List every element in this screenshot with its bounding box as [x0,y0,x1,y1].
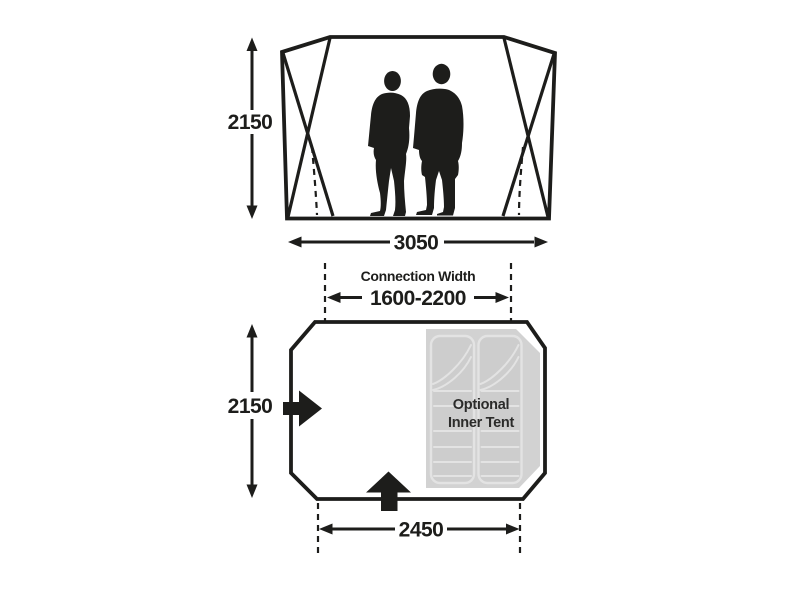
inner-tent-label-line2: Inner Tent [448,415,514,431]
connection-width-range-label: 1600-2200 [370,287,466,310]
arrowhead-left-icon [319,524,333,535]
plan-width-label: 2450 [399,519,444,542]
tent-spec-diagram: 2150 3050 Connection Width [0,0,800,600]
plan-view: Connection Width 1600-2200 [228,263,545,557]
arrowhead-up-icon [247,38,258,52]
front-height-label: 2150 [228,111,273,134]
inner-tent-label-line1: Optional [453,397,509,413]
front-right-door-edge [503,54,554,216]
arrowhead-left-icon [288,237,302,248]
diagram-canvas: 2150 3050 Connection Width [0,0,800,600]
arrowhead-down-icon [247,485,258,499]
front-height-dimension: 2150 [228,38,273,220]
entrance-arrow-bottom-icon [366,472,411,512]
optional-inner-tent-area: Optional Inner Tent [426,329,540,488]
connection-width-title: Connection Width [361,268,476,284]
arrowhead-down-icon [247,206,258,220]
entrance-arrow-left-icon [283,391,322,427]
front-elevation-view: 2150 3050 [228,37,555,255]
plan-depth-dimension: 2150 [228,324,273,498]
front-width-dimension: 3050 [288,232,548,255]
arrowhead-right-icon [506,524,520,535]
arrowhead-right-icon [496,292,510,303]
person-silhouette-man [413,64,464,216]
plan-width-dimension: 2450 [318,503,520,557]
arrowhead-right-icon [535,237,549,248]
connection-width-dimension: Connection Width 1600-2200 [325,263,511,321]
plan-depth-label: 2150 [228,395,273,418]
arrowhead-up-icon [247,324,258,338]
front-width-label: 3050 [394,232,439,255]
arrowhead-left-icon [327,292,341,303]
front-left-door-edge [283,53,333,216]
person-silhouette-woman [368,71,410,216]
